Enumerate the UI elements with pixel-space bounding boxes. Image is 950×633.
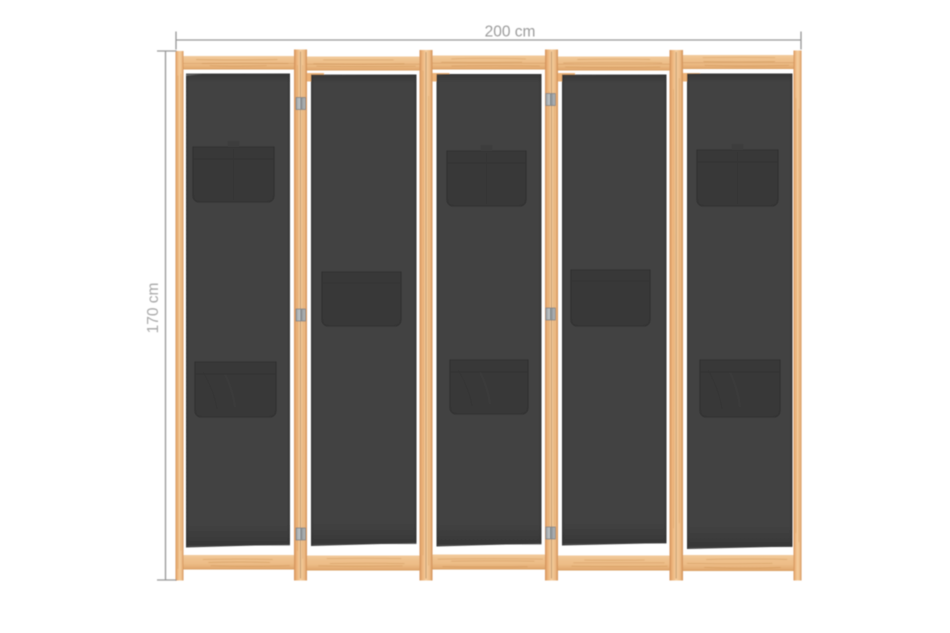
svg-text:170 cm: 170 cm bbox=[145, 283, 162, 334]
svg-text:200 cm: 200 cm bbox=[485, 24, 536, 41]
